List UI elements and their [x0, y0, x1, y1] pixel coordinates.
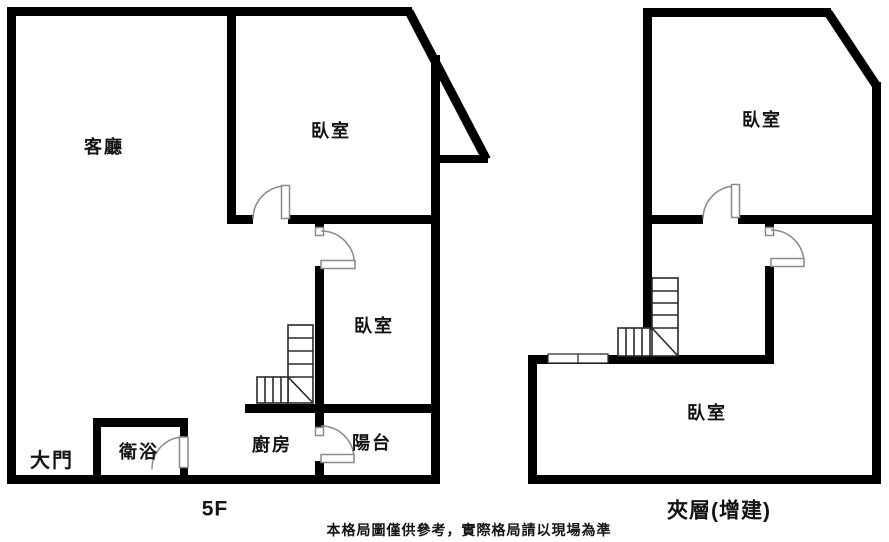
wall-right-diagonal: [828, 13, 877, 87]
label-bedroom-bottom-right-unit: 臥室: [687, 404, 727, 422]
label-floor-mezzanine: 夾層(增建): [667, 501, 771, 522]
door-arc-bedroom2: [321, 231, 355, 265]
wall-left-west: [7, 7, 16, 484]
label-bathroom: 衛浴: [119, 443, 159, 461]
door-jamb-middle: [766, 228, 774, 236]
door-leaf-bathroom: [180, 437, 189, 468]
wall-bathroom-north: [93, 418, 188, 427]
wall-right-west-upper: [643, 8, 652, 330]
left-unit-walls: [7, 7, 488, 484]
wall-mid-vertical-c: [315, 461, 324, 484]
label-bedroom-mid-left-unit: 臥室: [354, 317, 394, 335]
wall-right-east: [872, 82, 881, 484]
wall-bedroomR-south-a: [643, 215, 703, 224]
wall-bathroom-east-a: [180, 418, 188, 437]
label-floor-5f: 5F: [202, 499, 229, 520]
wall-lower-bed-west: [528, 355, 537, 484]
wall-left-top: [7, 7, 412, 16]
wall-mid-vertical-r-b: [765, 266, 774, 364]
left-unit-stairs: [257, 325, 313, 403]
wall-bedroom1-south-a: [227, 215, 253, 224]
wall-mid-vertical-b: [315, 266, 324, 428]
door-leaf-balcony: [321, 455, 354, 463]
wall-bathroom-west: [93, 418, 101, 475]
wall-right-bottom: [528, 475, 881, 484]
wall-left-bottom: [7, 475, 440, 484]
wall-left-diagonal: [409, 12, 487, 160]
disclaimer-text: 本格局圖僅供參考，實際格局請以現場為準: [327, 523, 612, 537]
floorplan-canvas: 客廳 臥室 臥室 大門 衛浴 廚房 陽台 5F 臥室 臥室 夾層(增建) 本格局…: [0, 0, 889, 542]
label-kitchen: 廚房: [252, 436, 292, 454]
wall-bedroom1-west: [227, 7, 236, 224]
door-jamb-balcony: [316, 428, 324, 436]
wall-triangle-bottom: [431, 155, 488, 163]
door-leaf-middle: [771, 259, 804, 267]
wall-bedroom1-south-b: [288, 215, 440, 224]
door-leaf-bedroom2: [321, 261, 355, 269]
wall-kitchen-north: [245, 404, 440, 413]
right-unit-doors: [703, 185, 804, 267]
label-living-room: 客廳: [84, 138, 124, 156]
stair-flight-vertical: [652, 278, 678, 356]
door-leaf-bedroom1: [282, 186, 290, 219]
label-balcony: 陽台: [352, 434, 392, 452]
wall-bathroom-east-b: [180, 467, 188, 476]
right-unit-window: [548, 354, 608, 363]
door-leaf-bedroomR: [732, 185, 740, 218]
label-bedroom-top-right-unit: 臥室: [742, 111, 782, 129]
wall-bedroomR-south-b: [738, 215, 881, 224]
wall-right-top: [643, 8, 831, 17]
label-bedroom-top-left-unit: 臥室: [311, 122, 351, 140]
wall-left-east: [431, 55, 440, 484]
label-main-entrance: 大門: [30, 451, 74, 471]
